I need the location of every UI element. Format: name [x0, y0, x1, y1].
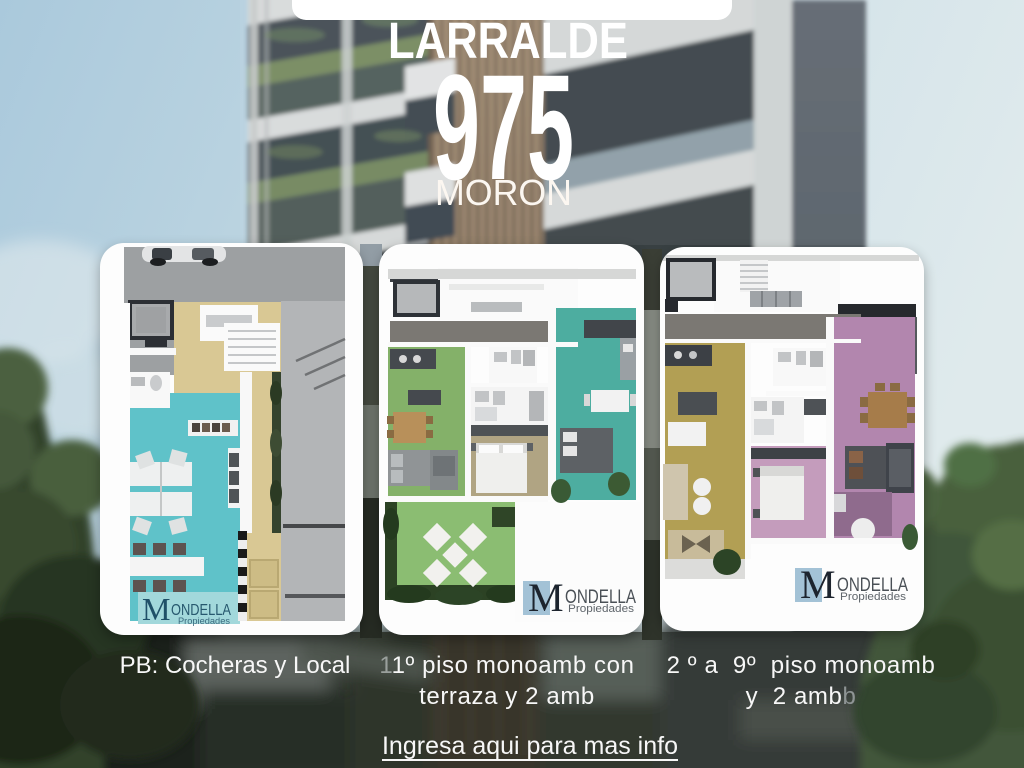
svg-text:M: M — [142, 591, 170, 627]
svg-text:Propiedades: Propiedades — [178, 616, 231, 626]
svg-text:MORON: MORON — [435, 172, 572, 213]
svg-text:Propiedades: Propiedades — [568, 603, 635, 615]
svg-text:Propiedades: Propiedades — [840, 591, 907, 603]
svg-text:M: M — [528, 575, 564, 620]
svg-text:M: M — [800, 562, 836, 607]
